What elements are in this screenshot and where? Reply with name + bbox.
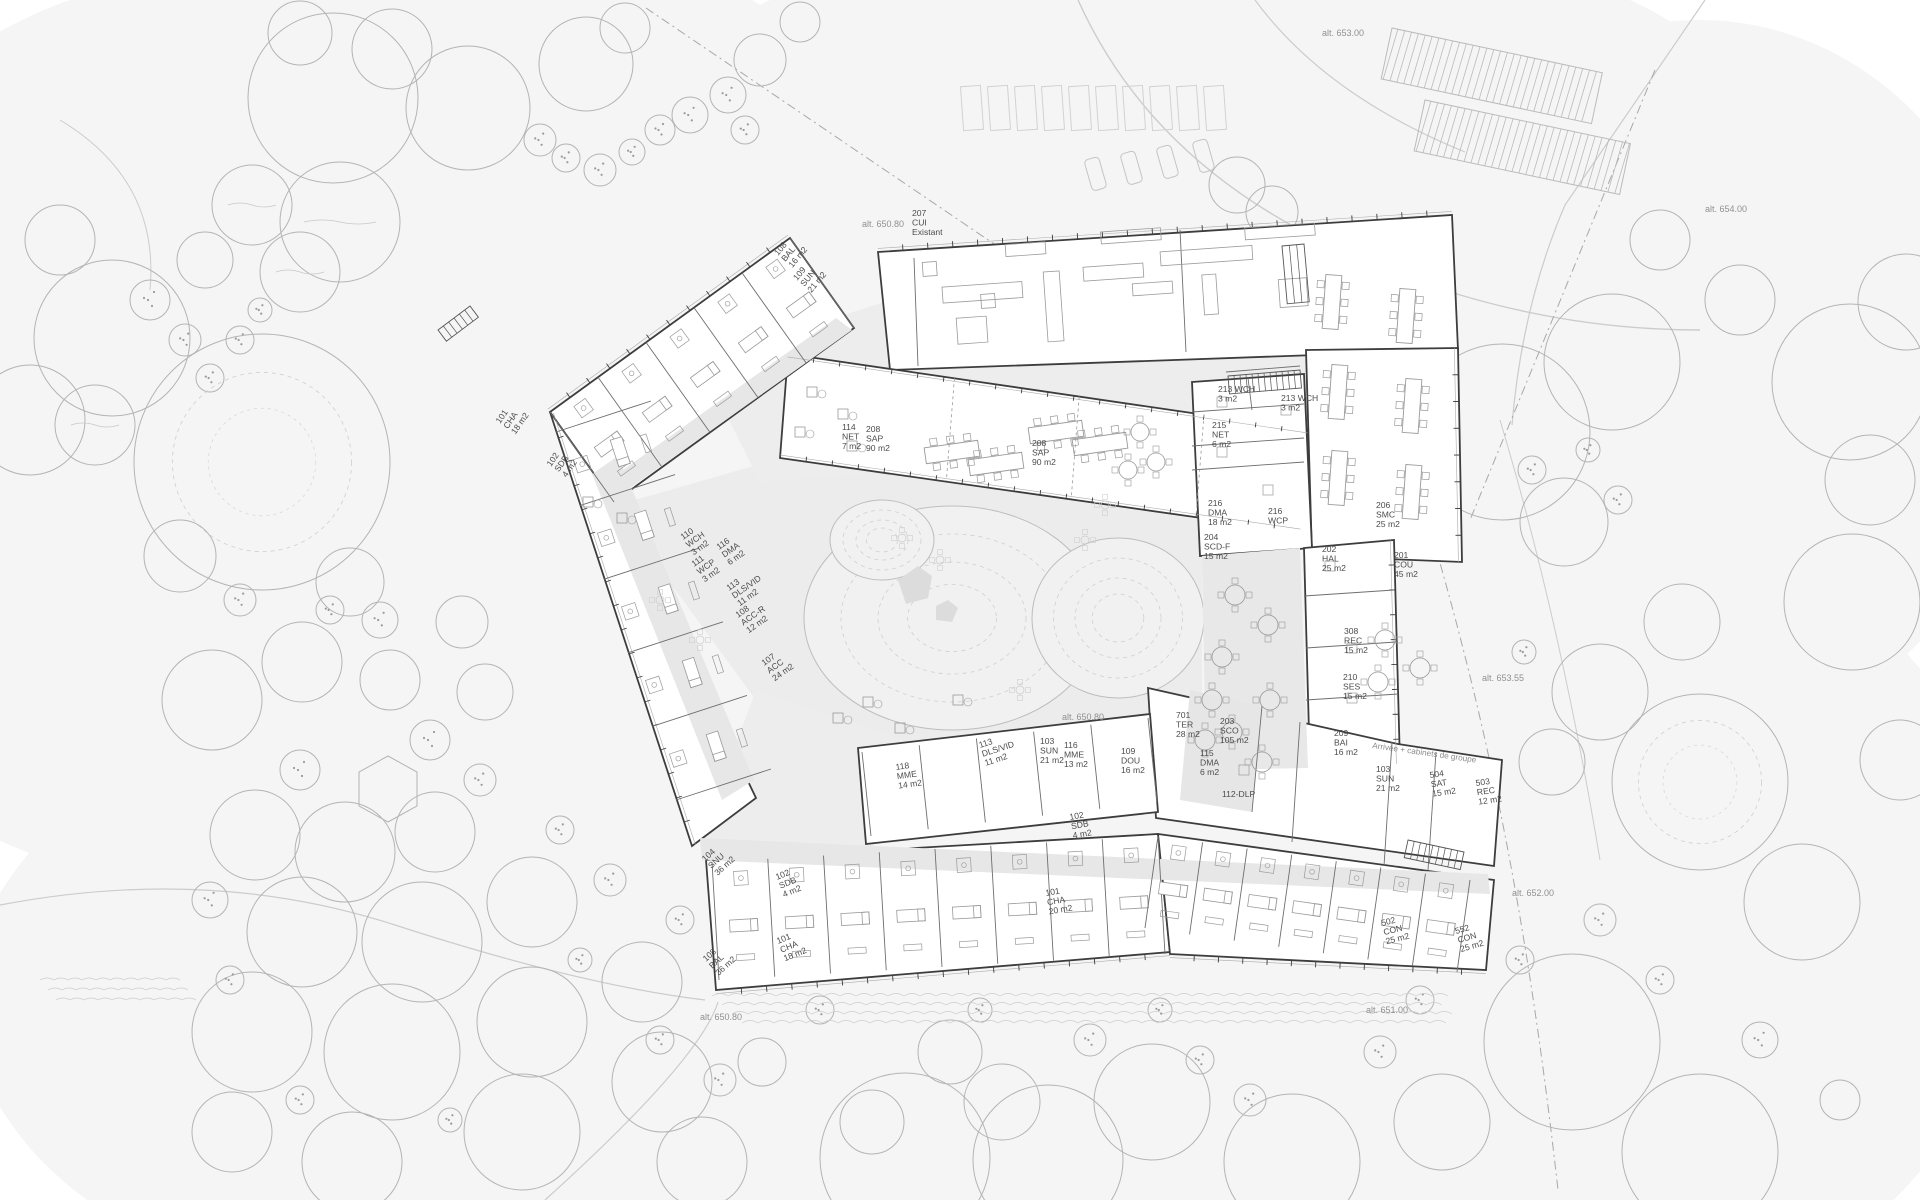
tree-dot [182, 339, 184, 341]
tree-dot [1534, 463, 1536, 465]
tree-dot [654, 127, 656, 129]
tree-dot [725, 94, 727, 96]
tree-dot [210, 381, 212, 383]
tree-dot [627, 150, 629, 152]
tree-dot [1382, 1045, 1384, 1047]
tree-dot [1662, 973, 1664, 975]
tree-dot [1522, 651, 1524, 653]
tree-dot [477, 779, 479, 781]
tree-dot [1594, 917, 1596, 919]
tree-dot [1519, 650, 1521, 652]
tree-dot [255, 308, 257, 310]
tree-dot [151, 305, 153, 307]
tree-dot [581, 954, 583, 956]
tree-dot [451, 1114, 453, 1116]
tree-dot [607, 879, 609, 881]
tree-dot [1761, 1044, 1763, 1046]
tree-dot [1522, 953, 1524, 955]
bed [841, 912, 870, 926]
play-mound [1032, 538, 1204, 698]
tree-dot [1602, 913, 1604, 915]
tree-dot [482, 773, 484, 775]
tree-dot [822, 1003, 824, 1005]
tree-dot [820, 1013, 822, 1015]
tree-dot [1200, 1063, 1202, 1065]
tree-dot [228, 979, 230, 981]
tree-dot [1092, 1033, 1094, 1035]
window-tick [741, 988, 742, 994]
tree-dot [978, 1009, 980, 1011]
tree-dot [258, 309, 260, 311]
tree-dot [693, 107, 695, 109]
tree-dot [1158, 1009, 1160, 1011]
tree-dot [1247, 1099, 1249, 1101]
tree-dot [632, 155, 634, 157]
tree-dot [431, 745, 433, 747]
tree-dot [1198, 1059, 1200, 1061]
tree-dot [1754, 1037, 1756, 1039]
tree-dot [818, 1009, 820, 1011]
tree-dot [261, 304, 263, 306]
bed [785, 915, 814, 929]
tree-dot [1763, 1032, 1765, 1034]
tree-dot [238, 339, 240, 341]
tree-dot [295, 1098, 297, 1100]
tree-dot [662, 123, 664, 125]
window-tick [1019, 965, 1020, 971]
tree-dot [611, 884, 613, 886]
tree-dot [1586, 449, 1588, 451]
tree-dot [680, 923, 682, 925]
tree-dot [237, 599, 239, 601]
bed [897, 909, 926, 923]
elevation-label: alt. 650.80 [862, 219, 904, 229]
window-tick [766, 986, 767, 992]
tree-dot [740, 128, 742, 130]
tree-dot [542, 133, 544, 135]
tree-dot [662, 1033, 664, 1035]
tree-dot [1520, 963, 1522, 965]
tree-dot [747, 123, 749, 125]
tree-dot [717, 1079, 719, 1081]
tree-dot [980, 1013, 982, 1015]
tree-dot [205, 376, 207, 378]
tree-dot [332, 603, 334, 605]
tree-dot [330, 613, 332, 615]
window-tick [943, 971, 944, 977]
tree-dot [232, 973, 234, 975]
tree-dot [208, 377, 210, 379]
tree-dot [230, 983, 232, 985]
tree-dot [1377, 1051, 1379, 1053]
tree-dot [634, 146, 636, 148]
elevation-label: alt. 652.00 [1512, 888, 1554, 898]
tree-dot [1601, 924, 1603, 926]
tree-dot [445, 1118, 447, 1120]
window-tick [893, 975, 894, 981]
window-tick [1094, 958, 1095, 964]
tree-dot [1597, 919, 1599, 921]
tree-dot [682, 913, 684, 915]
wing-d [1306, 348, 1462, 562]
tree-dot [383, 612, 385, 614]
tree-dot [1527, 468, 1529, 470]
tree-dot [153, 291, 155, 293]
tree-dot [293, 767, 295, 769]
tree-dot [1244, 1097, 1246, 1099]
tree-dot [297, 769, 299, 771]
tree-dot [578, 959, 580, 961]
tree-dot [1374, 1049, 1376, 1051]
tree-dot [325, 608, 327, 610]
tree-dot [301, 775, 303, 777]
tree-dot [675, 918, 677, 920]
tree-dot [1589, 444, 1591, 446]
bed [729, 918, 758, 932]
tree-dot [731, 87, 733, 89]
tree-dot [328, 609, 330, 611]
tree-dot [537, 139, 539, 141]
tree-dot [1620, 493, 1622, 495]
tree-dot [1757, 1039, 1759, 1041]
tree-dot [721, 1084, 723, 1086]
tree-dot [555, 828, 557, 830]
tree-dot [1415, 998, 1417, 1000]
tree-dot [1418, 999, 1420, 1001]
tree-dot [1618, 503, 1620, 505]
room-label-text: 112-DLP [1222, 789, 1256, 799]
tree-dot [568, 151, 570, 153]
tree-dot [427, 739, 429, 741]
tree-dot [566, 161, 568, 163]
elevation-label: alt. 650.80 [1062, 712, 1104, 722]
tree-dot [722, 1073, 724, 1075]
tree-dot [423, 737, 425, 739]
elevation-label: alt. 651.00 [1366, 1005, 1408, 1015]
tree-dot [374, 617, 376, 619]
tree-dot [722, 92, 724, 94]
window-tick [1145, 954, 1146, 960]
tree-dot [240, 343, 242, 345]
tree-dot [213, 892, 215, 894]
tree-dot [377, 619, 379, 621]
tree-dot [147, 299, 149, 301]
tree-dot [975, 1008, 977, 1010]
tree-dot [658, 1039, 660, 1041]
tree-dot [1655, 978, 1657, 980]
window-tick [1069, 960, 1070, 966]
tree-dot [207, 899, 209, 901]
window-tick [968, 969, 969, 975]
tree-dot [534, 137, 536, 139]
tree-dot [580, 963, 582, 965]
tree-dot [561, 156, 563, 158]
tree-dot [234, 597, 236, 599]
tree-dot [655, 1038, 657, 1040]
tree-dot [298, 1099, 300, 1101]
window-tick [817, 982, 818, 988]
elevation-label: alt. 653.55 [1482, 673, 1524, 683]
tree-dot [1532, 473, 1534, 475]
tree-dot [1252, 1093, 1254, 1095]
tree-dot [1524, 655, 1526, 657]
tree-dot [433, 731, 435, 733]
tree-dot [597, 169, 599, 171]
tree-dot [1091, 1044, 1093, 1046]
tree-dot [1616, 499, 1618, 501]
tree-dot [604, 877, 606, 879]
tree-dot [729, 99, 731, 101]
tree-dot [241, 604, 243, 606]
tree-dot [303, 761, 305, 763]
tree-dot [1155, 1008, 1157, 1010]
tree-dot [684, 112, 686, 114]
tree-dot [179, 337, 181, 339]
tree-dot [1583, 448, 1585, 450]
tree-dot [1518, 959, 1520, 961]
window-tick [993, 967, 994, 973]
tree-dot [212, 371, 214, 373]
tree-dot [211, 904, 213, 906]
window-tick [792, 984, 793, 990]
tree-dot [204, 897, 206, 899]
tree-dot [1381, 1056, 1383, 1058]
room-label: 112-DLP [1222, 789, 1256, 799]
tree-dot [687, 114, 689, 116]
tree-dot [1588, 453, 1590, 455]
tree-dot [1195, 1058, 1197, 1060]
window-tick [842, 979, 843, 985]
tree-dot [660, 1043, 662, 1045]
tree-dot [1613, 498, 1615, 500]
tree-dot [1084, 1037, 1086, 1039]
elevation-label: alt. 654.00 [1705, 204, 1747, 214]
elevation-label: alt. 650.80 [700, 1012, 742, 1022]
tree-dot [448, 1119, 450, 1121]
tree-dot [1087, 1039, 1089, 1041]
tree-dot [745, 133, 747, 135]
tree-dot [657, 129, 659, 131]
tree-dot [481, 784, 483, 786]
bed [1008, 902, 1037, 916]
floor-plan-drawing: 207CUIExistant213 WCH3 m2213 WCH3 m2215N… [0, 0, 1920, 1200]
tree-dot [143, 297, 145, 299]
tree-dot [678, 919, 680, 921]
tree-dot [450, 1123, 452, 1125]
window-tick [867, 977, 868, 983]
window-tick [918, 973, 919, 979]
tree-dot [186, 344, 188, 346]
tree-dot [242, 593, 244, 595]
tree-dot [594, 167, 596, 169]
window-tick [1044, 963, 1045, 969]
tree-dot [1660, 983, 1662, 985]
tree-dot [260, 313, 262, 315]
tree-dot [630, 151, 632, 153]
bed [952, 905, 981, 919]
tree-dot [743, 129, 745, 131]
bed [1120, 896, 1149, 910]
tree-dot [714, 1077, 716, 1079]
tree-dot [1658, 979, 1660, 981]
tree-dot [981, 1004, 983, 1006]
elevation-label: alt. 653.00 [1322, 28, 1364, 38]
tree-dot [660, 133, 662, 135]
tree-dot [601, 174, 603, 176]
tree-dot [558, 829, 560, 831]
tree-dot [815, 1008, 817, 1010]
tree-dot [225, 978, 227, 980]
tree-dot [1525, 646, 1527, 648]
tree-dot [1202, 1053, 1204, 1055]
tree-dot [1530, 469, 1532, 471]
window-tick [1120, 956, 1121, 962]
tree-dot [560, 833, 562, 835]
tree-dot [381, 624, 383, 626]
tree-dot [562, 823, 564, 825]
tree-dot [187, 333, 189, 335]
site-plan-canvas: 207CUIExistant213 WCH3 m2213 WCH3 m2215N… [0, 0, 1920, 1200]
tree-dot [235, 338, 237, 340]
tree-dot [602, 163, 604, 165]
tree-dot [575, 958, 577, 960]
tree-dot [1251, 1104, 1253, 1106]
tree-dot [1161, 1004, 1163, 1006]
tree-dot [300, 1103, 302, 1105]
tree-dot [564, 157, 566, 159]
tree-dot [691, 119, 693, 121]
tree-dot [302, 1093, 304, 1095]
tree-dot [612, 873, 614, 875]
tree-dot [1515, 958, 1517, 960]
tree-dot [474, 777, 476, 779]
tree-dot [541, 144, 543, 146]
